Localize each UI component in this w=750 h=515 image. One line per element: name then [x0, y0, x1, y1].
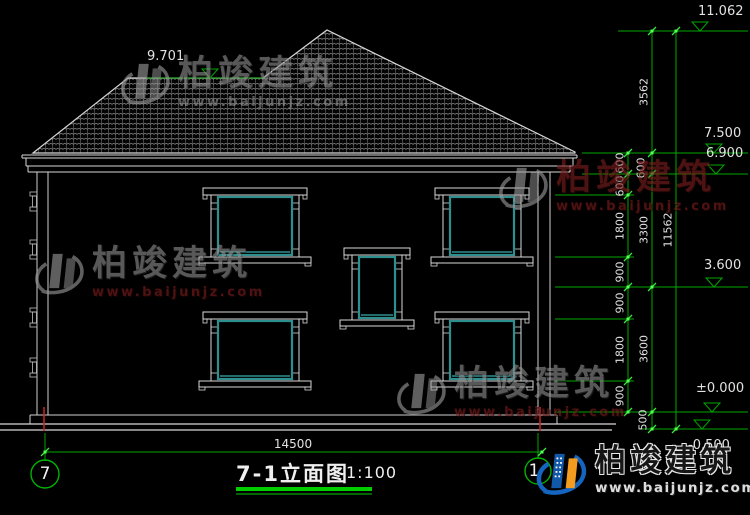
drawing-title: 7-1立面图	[236, 458, 349, 488]
title-underline	[236, 487, 372, 494]
axis-bubble-left-number: 7	[40, 464, 51, 484]
elevation-ground-floor: ±0.000	[696, 381, 744, 396]
window-2f-right	[431, 188, 533, 266]
dim-bottom-14500: 14500	[274, 437, 312, 451]
elevation-ridge: 11.062	[698, 4, 744, 19]
logo-url: www.baijunjz.com	[595, 480, 750, 496]
plinth-and-ground	[0, 415, 616, 430]
dim-inner-600a: 600	[614, 153, 627, 174]
dim-middle-600: 600	[635, 158, 648, 179]
window-1f-right	[431, 312, 533, 390]
dim-inner-900c: 900	[614, 386, 627, 407]
dim-inner-1800b: 1800	[614, 336, 627, 364]
dim-inner-900b: 900	[614, 293, 627, 314]
dim-inner-900a: 900	[614, 262, 627, 283]
dim-middle-3300: 3300	[638, 216, 651, 244]
dim-middle-500: 500	[637, 410, 650, 431]
dim-overall-11562: 11562	[662, 213, 675, 248]
logo-brand: 柏竣建筑	[595, 446, 750, 477]
left-wall-brackets	[30, 192, 37, 377]
company-logo: 柏竣建筑 www.baijunjz.com	[534, 446, 750, 496]
hip-roof	[33, 30, 575, 153]
dim-middle-3562: 3562	[638, 78, 651, 106]
window-2f-left	[199, 188, 311, 266]
elevation-second-floor: 3.600	[704, 258, 741, 273]
elevation-eave-bottom: 6.900	[706, 146, 743, 161]
window-stair-center	[340, 248, 414, 329]
window-1f-left	[199, 312, 311, 390]
dim-inner-1800a: 1800	[614, 212, 627, 240]
axis-red-marks	[44, 407, 540, 431]
logo-building-icon	[534, 446, 588, 496]
elevation-eave-top: 7.500	[704, 126, 741, 141]
dim-inner-600b: 600	[614, 176, 627, 197]
drawing-scale: 1:100	[346, 463, 397, 482]
elevation-drawing-canvas: 11.062 7.500 6.900 3.600 ±0.000 -0.500 9…	[0, 0, 750, 515]
elevation-roof-left: 9.701	[147, 49, 184, 64]
eave-cornice	[22, 155, 577, 172]
dim-middle-3600: 3600	[638, 335, 651, 363]
